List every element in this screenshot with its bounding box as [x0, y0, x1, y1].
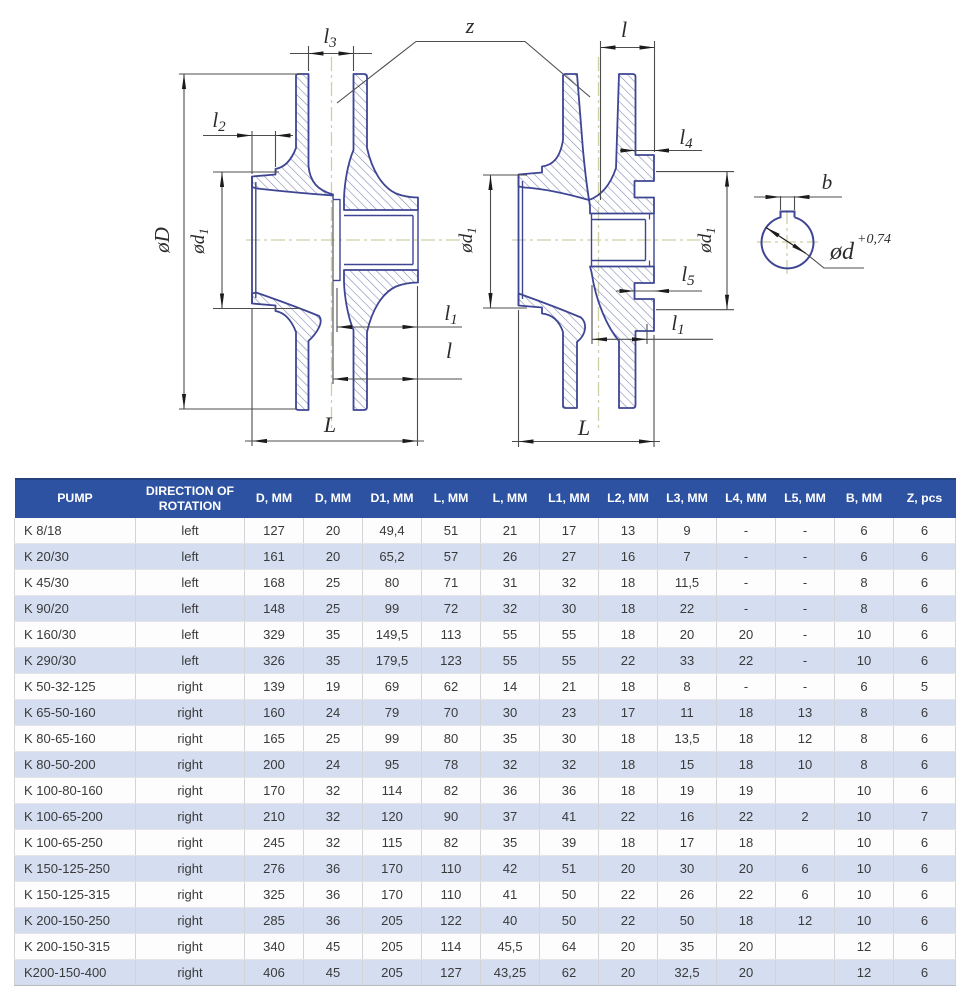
svg-text:l: l [621, 17, 627, 42]
svg-text:b: b [822, 170, 833, 194]
svg-text:øD: øD [150, 227, 174, 254]
svg-text:z: z [465, 13, 475, 38]
svg-text:L: L [323, 412, 336, 437]
svg-text:+0,74: +0,74 [857, 232, 891, 247]
svg-text:ød: ød [829, 239, 855, 265]
svg-text:l: l [446, 338, 452, 363]
svg-text:L: L [577, 415, 590, 440]
